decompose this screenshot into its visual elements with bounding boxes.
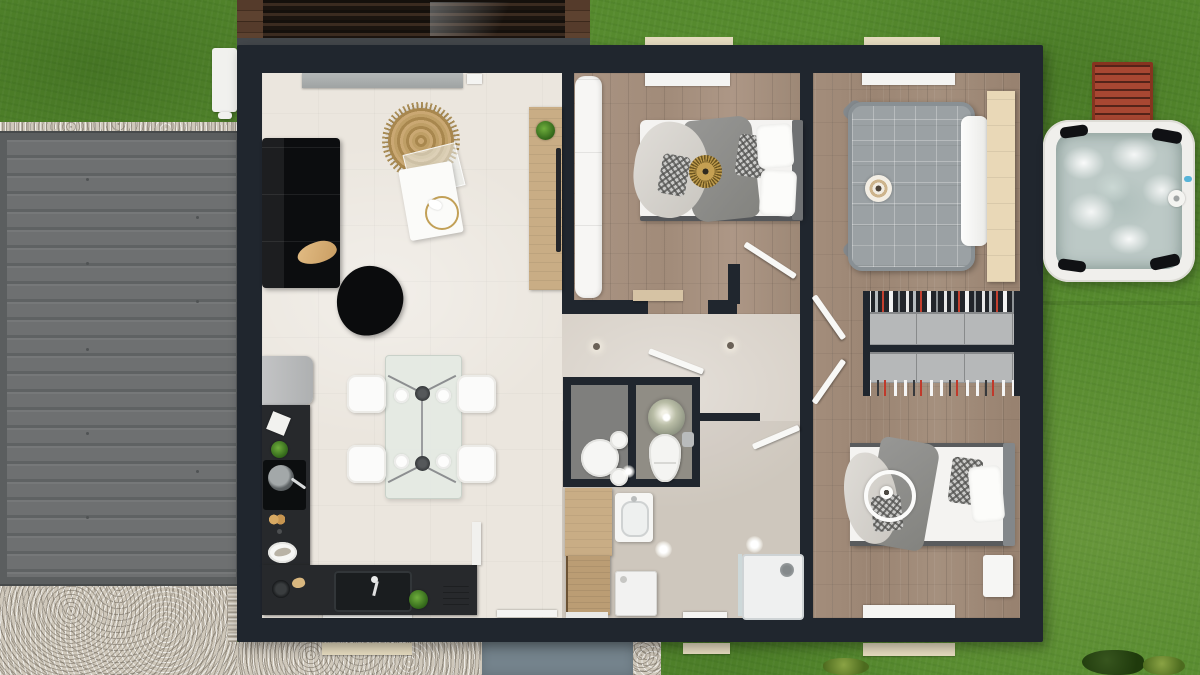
- plate: [394, 388, 409, 403]
- garden-bench: [1092, 62, 1153, 123]
- window-hall-bottom: [683, 612, 727, 618]
- ring-light-center: [880, 486, 893, 499]
- roof-screw: [86, 178, 89, 181]
- roof-screw: [196, 216, 199, 219]
- sphere-glow: [662, 413, 671, 422]
- wall-bedroom1-bottom-left: [562, 300, 648, 314]
- pendant-lamp: [415, 386, 430, 401]
- gravel-yard-left: [0, 568, 237, 675]
- dining-chair: [457, 375, 496, 413]
- black-pot: [272, 580, 290, 598]
- window-sill: [322, 643, 412, 655]
- wardrobe-row-top: [868, 312, 1014, 345]
- roof-screw: [86, 432, 89, 435]
- bedroom1-pillow: [756, 123, 795, 169]
- window-living-small: [467, 74, 482, 84]
- toilet-lid-line: [654, 462, 676, 464]
- wardrobe-end-cap: [1014, 291, 1020, 396]
- bedroom1-wall-bench: [633, 290, 683, 301]
- plate: [394, 454, 409, 469]
- plate: [436, 454, 451, 469]
- bedroom1-wardrobe: [575, 76, 602, 298]
- roof-screw: [196, 470, 199, 473]
- wardrobe-row-bottom: [868, 352, 1014, 383]
- gravel-strip-right: [633, 642, 661, 675]
- dining-chair: [347, 445, 386, 483]
- shrub: [1082, 650, 1144, 675]
- vanity-basin: [621, 501, 649, 537]
- pendant-track: [421, 396, 423, 462]
- shower-drain: [780, 563, 794, 577]
- front-door-open: [566, 556, 610, 615]
- heat-pump-foot: [218, 112, 232, 119]
- wall-vestibule: [800, 280, 813, 302]
- sink-plant: [409, 590, 428, 609]
- heat-pump-unit: [212, 48, 237, 112]
- vanity-faucet: [631, 496, 637, 502]
- nightstand: [983, 555, 1013, 597]
- console-plant: [536, 121, 555, 140]
- round-target-cushion: [865, 175, 892, 202]
- window-sill: [683, 643, 730, 654]
- window-living-bottom: [497, 610, 557, 617]
- shoe-row: [868, 380, 1014, 396]
- master-headboard-panel: [987, 91, 1015, 282]
- pendant-lamp: [415, 456, 430, 471]
- dining-chair: [457, 445, 496, 483]
- roof-screw: [86, 516, 89, 519]
- plate: [436, 388, 451, 403]
- bedroom1-pillow: [759, 169, 797, 217]
- small-dish: [277, 529, 282, 534]
- hot-tub-control: [1168, 190, 1185, 207]
- shower-tray: [742, 554, 804, 620]
- fridge: [262, 356, 313, 405]
- master-sheet: [961, 116, 988, 246]
- hot-tub-indicator: [1184, 176, 1192, 182]
- wall-living-bedroom1: [562, 73, 574, 300]
- corner-sofa: [262, 138, 340, 288]
- counter-plant: [271, 441, 288, 458]
- window-sill: [863, 643, 955, 656]
- roof-screw: [86, 348, 89, 351]
- ceiling-light: [746, 536, 763, 553]
- door-threshold: [566, 612, 608, 618]
- roof-screw: [196, 300, 199, 303]
- hanging-clothes-row: [868, 291, 1014, 312]
- ceiling-light: [622, 465, 635, 478]
- hot-tub-water: [1056, 133, 1182, 269]
- wardrobe-end-cap: [863, 291, 870, 396]
- lawn-seam: [1043, 301, 1200, 305]
- window-bench-bedroom3: [863, 605, 955, 618]
- ceiling-spot: [593, 343, 600, 350]
- dining-chair: [347, 375, 386, 413]
- wall-bedroom1-stub: [728, 264, 740, 304]
- sunburst-cushion: [689, 155, 722, 188]
- front-path: [482, 642, 633, 675]
- garage-flat-roof: [0, 133, 243, 584]
- window-seat-bedroom1: [645, 73, 730, 86]
- basin-bowl: [610, 431, 628, 449]
- ceiling-light: [655, 541, 672, 558]
- toaster: [443, 584, 469, 608]
- washer-knob: [620, 576, 627, 583]
- bedroom3-headboard: [1003, 443, 1015, 546]
- shrub: [1143, 656, 1185, 675]
- wall-hall-bath: [700, 413, 760, 421]
- wall-cistern: [682, 432, 694, 447]
- floorplan-scene: [0, 0, 1200, 675]
- tv-flat: [556, 148, 561, 252]
- pastries: [269, 514, 285, 525]
- ceiling-spot: [727, 342, 734, 349]
- frying-pan: [268, 465, 294, 491]
- window-seat-master: [862, 73, 955, 85]
- pergola-glass-reflection: [430, 2, 540, 36]
- bedroom3-pillow: [968, 465, 1006, 524]
- window-seat-living: [302, 73, 463, 88]
- shower-glass: [738, 554, 742, 616]
- tall-wood-cabinet: [565, 488, 612, 556]
- counter-end-panel: [472, 522, 481, 565]
- shrub: [823, 658, 869, 675]
- roof-screw: [86, 262, 89, 265]
